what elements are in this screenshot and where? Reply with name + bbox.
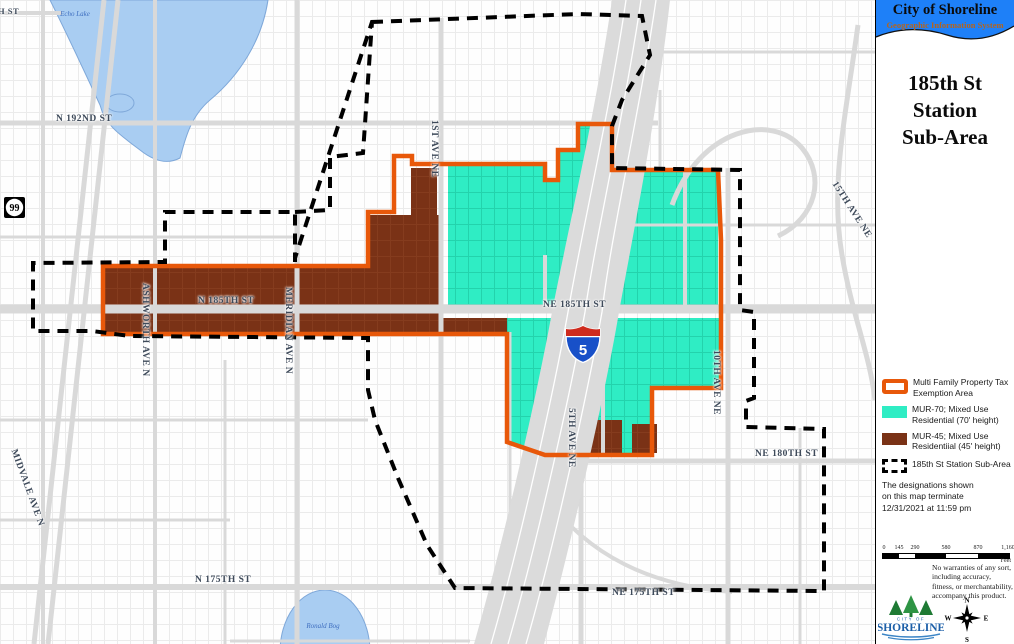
street-label-meridian: MERIDIAN AVE N [283,287,293,374]
compass-e: E [984,615,989,623]
legend-label: Multi Family Property Tax Exemption Area [913,377,1012,399]
place-label-echo-lake: Echo Lake [58,10,92,18]
scale-tick: 580 [942,545,951,551]
legend-swatch-dashed [882,459,907,473]
scale-bar: 0 145 290 580 870 1,160 Feet [882,545,1009,565]
street-label-180th: NE 180TH ST [755,449,818,459]
map-title-line1: 185th St [876,70,1014,97]
logo-name: SHORELINE [878,622,944,634]
compass-rose: N E S W [944,592,990,644]
scale-tick: 0 [883,545,886,551]
org-title: City of Shoreline [876,2,1014,19]
org-subtitle: Geographic Information System [876,20,1014,30]
legend-item-subarea: 185th St Station Sub-Area [882,457,1012,473]
compass-w: W [945,615,952,623]
route-99-shield: 99 [4,197,25,218]
street-label-192nd: N 192ND ST [56,114,112,124]
termination-note-line: 12/31/2021 at 11:59 pm [882,503,1007,514]
scale-tick: 870 [974,545,983,551]
disclaimer-line: including accuracy, [932,572,1014,581]
termination-note: The designations shown on this map termi… [882,480,1007,514]
scale-tick: 1,160 [1001,545,1014,551]
legend-item-exemption-area: Multi Family Property Tax Exemption Area [882,377,1012,399]
sidebar: City of Shoreline Geographic Information… [875,0,1014,644]
termination-note-line: The designations shown [882,480,1007,491]
interstate-5-number: 5 [579,342,587,359]
legend-swatch-teal [882,406,907,418]
street-label-5th-ave: 5TH AVE NE [566,408,576,468]
map-canvas: 99 5 H ST N 192ND ST N 185TH ST NE 185TH… [0,0,875,644]
legend-label: MUR-70; Mixed Use Residential (70' heigh… [912,404,1012,426]
legend-swatch-orange-outline [882,379,908,394]
street-label-partial: H ST [0,6,19,16]
map-title-line2: Station [876,97,1014,124]
legend: Multi Family Property Tax Exemption Area… [882,377,1012,478]
logo-city-of: CITY OF [897,617,925,622]
street-label-175th-east: NE 175TH ST [612,588,675,598]
place-label-ronald-bog: Ronald Bog [302,622,344,630]
route-99-number: 99 [10,203,20,214]
scale-bar-segments [882,553,1010,559]
legend-item-mur45: MUR-45; Mixed Use Residentiial (45' heig… [882,431,1012,453]
disclaimer-line: No warranties of any sort, [932,563,1014,572]
disclaimer-line: fitness, or merchantability, [932,582,1014,591]
map-title-line3: Sub-Area [876,124,1014,151]
street-label-ashworth: ASHWORTH AVE N [140,283,150,377]
street-label-185th-west: N 185TH ST [198,296,254,306]
shoreline-gis-map-page: 99 5 H ST N 192ND ST N 185TH ST NE 185TH… [0,0,1014,644]
legend-label: 185th St Station Sub-Area [912,459,1011,470]
legend-item-mur70: MUR-70; Mixed Use Residential (70' heigh… [882,404,1012,426]
scale-tick: 290 [911,545,920,551]
compass-n: N [964,597,969,605]
street-label-10th-ave: 10TH AVE NE [711,350,721,415]
scale-tick: 145 [895,545,904,551]
street-label-185th-east: NE 185TH ST [543,300,606,310]
logo-trees-icon [889,595,933,617]
street-label-175th-west: N 175TH ST [195,575,251,585]
map-title: 185th St Station Sub-Area [876,70,1014,151]
compass-s: S [965,636,969,644]
street-label-1st-ave: 1ST AVE NE [429,120,439,177]
legend-swatch-brown [882,433,907,445]
legend-label: MUR-45; Mixed Use Residentiial (45' heig… [912,431,1012,453]
city-of-shoreline-logo: CITY OF SHORELINE [878,592,944,642]
termination-note-line: on this map terminate [882,491,1007,502]
map-drawing: 99 5 [0,0,875,644]
